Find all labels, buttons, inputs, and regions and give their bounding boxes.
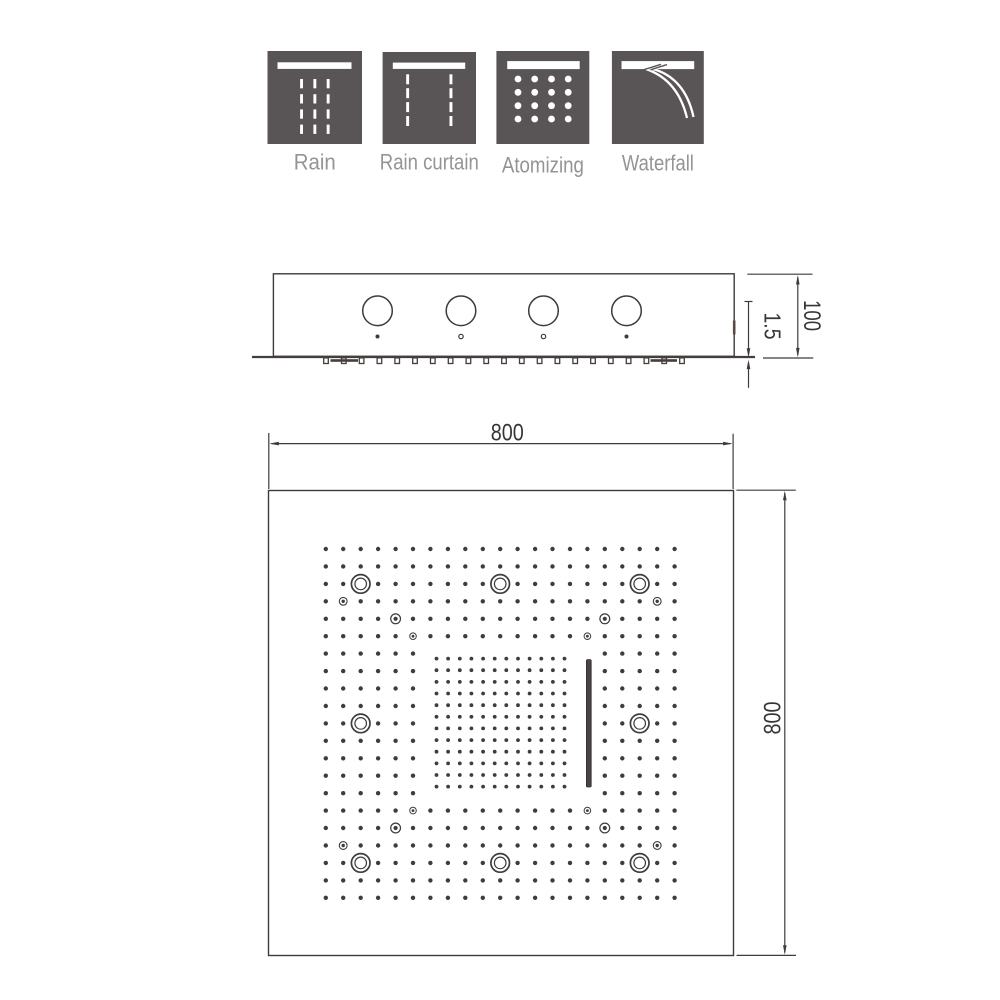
svg-text:1.5: 1.5 xyxy=(760,313,786,340)
svg-text:Rain curtain: Rain curtain xyxy=(380,150,479,175)
svg-text:Atomizing: Atomizing xyxy=(502,153,584,178)
svg-text:Rain: Rain xyxy=(294,150,336,175)
svg-text:800: 800 xyxy=(760,702,787,735)
svg-text:100: 100 xyxy=(798,300,825,331)
svg-text:800: 800 xyxy=(491,419,524,446)
svg-text:Waterfall: Waterfall xyxy=(622,151,694,176)
